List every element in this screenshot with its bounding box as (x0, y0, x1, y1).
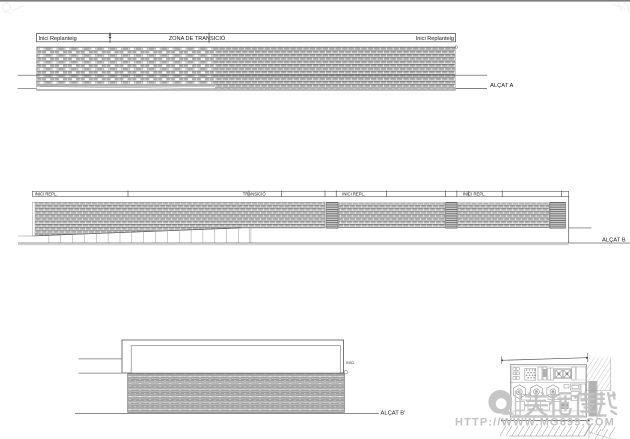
svg-text:TRANSICIÓ: TRANSICIÓ (243, 191, 267, 196)
svg-text:ALÇAT A: ALÇAT A (490, 83, 513, 89)
svg-text:ZONA DE TRANSICIÓ: ZONA DE TRANSICIÓ (169, 35, 226, 42)
svg-text:Inici Replanteig: Inici Replanteig (39, 36, 77, 42)
svg-text:ALÇAT B: ALÇAT B (602, 237, 626, 243)
svg-text:Inici Replanteig: Inici Replanteig (416, 36, 454, 42)
svg-text:ALÇAT B': ALÇAT B' (381, 411, 406, 417)
svg-text:INICI: INICI (346, 361, 354, 365)
svg-text:HTTP://WWW.MG699.COM: HTTP://WWW.MG699.COM (455, 416, 615, 428)
svg-text:INICI REPL.: INICI REPL. (342, 191, 365, 196)
svg-text:INICI REPL.: INICI REPL. (35, 191, 58, 196)
svg-text:INICI REPL.: INICI REPL. (463, 191, 486, 196)
